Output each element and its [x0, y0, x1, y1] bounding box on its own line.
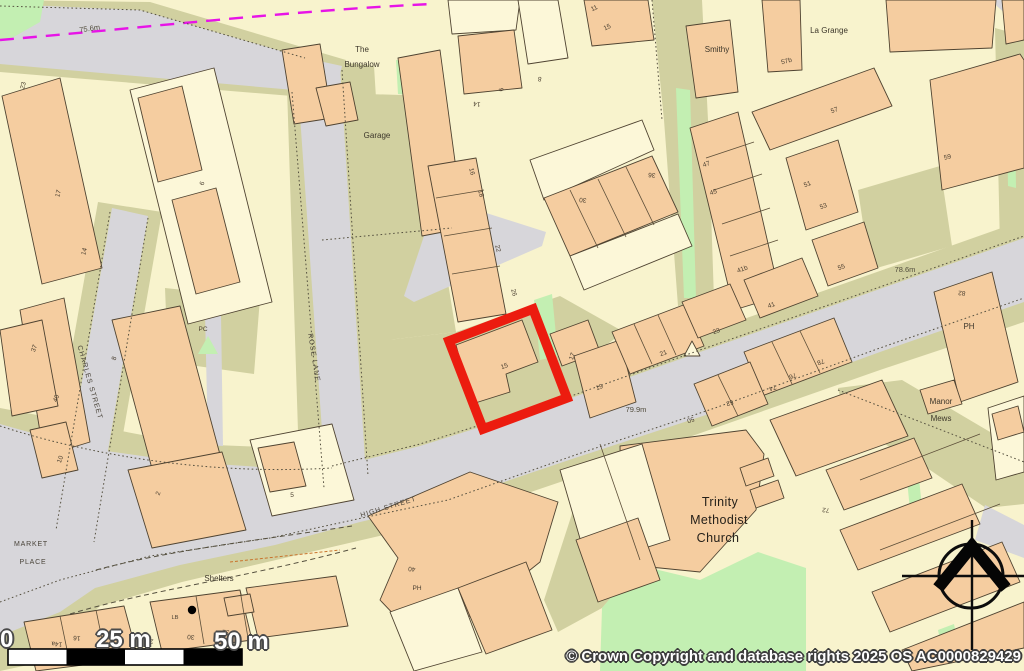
map-label: PH — [963, 322, 974, 331]
map-label: 40 — [408, 565, 416, 573]
map-label: PLACE — [20, 559, 47, 566]
map-label: 78.6m — [895, 265, 916, 274]
map-label: 30 — [187, 633, 195, 641]
map-label: 82 — [958, 289, 966, 297]
building — [458, 30, 522, 94]
map-label: PC — [198, 326, 207, 333]
map-label: 30 — [579, 196, 587, 204]
scale-label-25: 25 m — [96, 628, 151, 652]
map-label: Shelters — [204, 574, 233, 583]
map-label: Manor — [930, 397, 953, 406]
map-label: 72 — [822, 506, 830, 514]
map-label: Methodist — [690, 513, 748, 527]
map-label: LB — [171, 615, 178, 621]
map-label: Mews — [931, 414, 952, 423]
map-label: Church — [697, 531, 740, 545]
map-label: 5 — [290, 492, 294, 499]
map-label: La Grange — [810, 26, 848, 35]
building — [1002, 0, 1024, 44]
post-box-dot — [188, 606, 196, 614]
building — [886, 0, 996, 52]
map-label: 79.9m — [626, 405, 647, 414]
building — [224, 594, 254, 616]
map-label: Trinity — [702, 495, 739, 509]
copyright-text: © Crown Copyright and database rights 20… — [566, 648, 1021, 665]
map-label: 16 — [73, 634, 81, 642]
os-map-extract: 75.6m78.6m79.9mTheBungalowGarageSmithyLa… — [0, 0, 1024, 671]
map-label: 14a — [51, 640, 63, 648]
building — [448, 0, 520, 34]
scale-label-50: 50 m — [214, 630, 269, 654]
map-label: Garage — [364, 131, 391, 140]
map-label: MARKET — [14, 541, 48, 548]
map-label: The — [355, 45, 369, 54]
map-label: 36 — [648, 171, 656, 179]
map-canvas: 75.6m78.6m79.9mTheBungalowGarageSmithyLa… — [0, 0, 1024, 671]
map-label: Smithy — [705, 45, 729, 54]
map-label: 14 — [473, 100, 481, 108]
map-label: PH — [412, 585, 421, 592]
map-label: Bungalow — [344, 60, 379, 69]
scale-label-0: 0 — [0, 628, 13, 652]
